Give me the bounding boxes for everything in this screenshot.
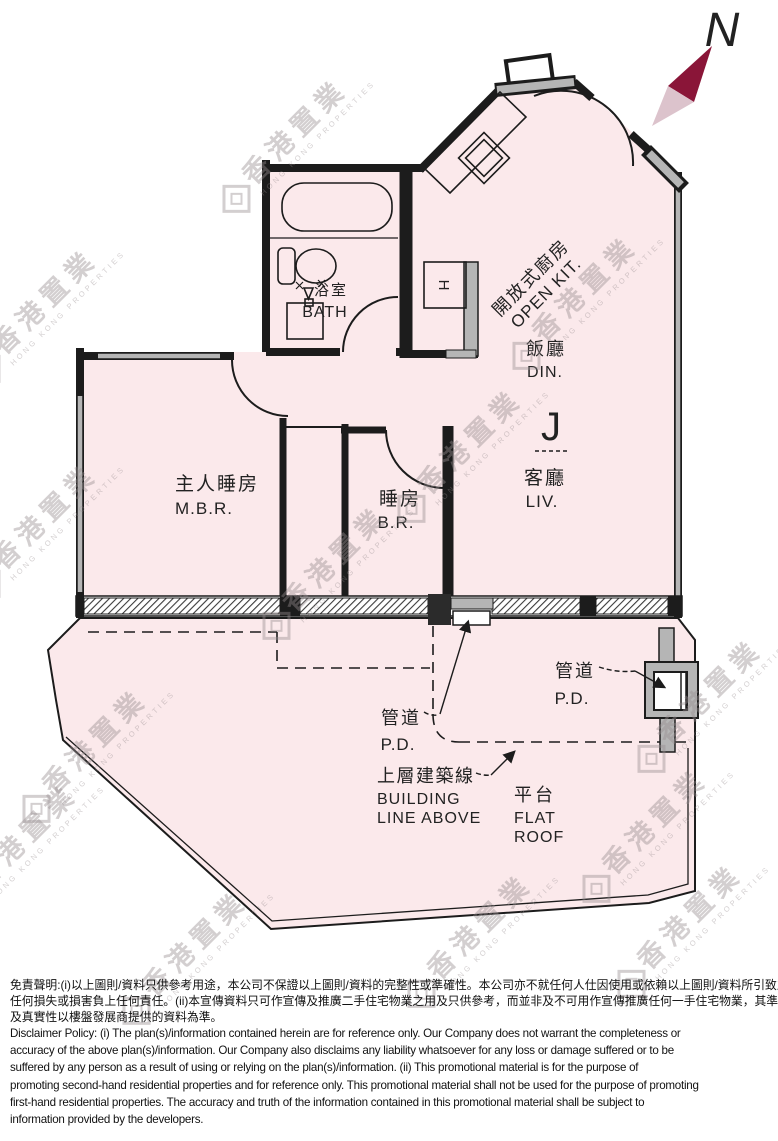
appliance-h-symbol: H	[435, 280, 452, 291]
label-dining-cn: 飯廳	[526, 339, 566, 359]
label-flat-roof-en2: ROOF	[514, 829, 564, 846]
label-living-cn: 客廳	[524, 467, 566, 489]
label-pd-left-cn: 管道	[381, 708, 421, 728]
label-pd-right-cn: 管道	[555, 661, 595, 681]
disclaimer-line-cn: 及真實性以樓盤發展商提供的資料為準。	[10, 1009, 776, 1025]
label-building-line-en2: LINE ABOVE	[377, 810, 481, 827]
label-bath-cn: 浴室	[314, 282, 348, 299]
windows	[76, 596, 682, 616]
label-flat-roof-en1: FLAT	[514, 810, 556, 827]
label-mbr-en: M.B.R.	[175, 499, 233, 518]
disclaimer: 免責聲明:(i)以上圖則/資料只供參考用途，本公司不保證以上圖則/資料的完整性或…	[10, 977, 776, 1128]
floor-plan-page: H 浴室 BATH 開放式廚房 OPEN KIT. 飯廳 DIN. J 客廳 L…	[0, 0, 778, 1141]
disclaimer-line-en: information provided by the developers.	[10, 1111, 776, 1128]
pipe-duct-middle	[428, 594, 493, 625]
label-br-cn: 睡房	[379, 488, 421, 510]
disclaimer-line-en: suffered by any person as a result of us…	[10, 1059, 776, 1076]
label-living-en: LIV.	[526, 492, 559, 511]
disclaimer-line-en: Disclaimer Policy: (i) The plan(s)/infor…	[10, 1025, 776, 1042]
north-arrow-icon: N	[652, 4, 740, 126]
disclaimer-line-en: first-hand residential properties. The a…	[10, 1094, 776, 1111]
flat-interior	[80, 80, 678, 616]
label-br-en: B.R.	[377, 513, 414, 532]
floor-plan: H 浴室 BATH 開放式廚房 OPEN KIT. 飯廳 DIN. J 客廳 L…	[0, 0, 778, 965]
label-flat-roof-cn: 平台	[514, 785, 556, 805]
disclaimer-line-en: accuracy of the above plan(s)/informatio…	[10, 1042, 776, 1059]
flat-roof-area	[48, 618, 695, 929]
label-building-line-en1: BUILDING	[377, 791, 461, 808]
label-pd-left-en: P.D.	[381, 735, 416, 754]
label-bath-en: BATH	[302, 304, 347, 321]
disclaimer-line-en: promoting second-hand residential proper…	[10, 1077, 776, 1094]
disclaimer-line-cn: 任何損失或損害負上任何責任。(ii)本宣傳資料只可作宣傳及推廣二手住宅物業之用及…	[10, 993, 776, 1009]
label-building-line-cn: 上層建築線	[377, 766, 475, 786]
label-pd-right-en: P.D.	[555, 689, 590, 708]
disclaimer-line-cn: 免責聲明:(i)以上圖則/資料只供參考用途，本公司不保證以上圖則/資料的完整性或…	[10, 977, 776, 993]
living-hook-symbol: J	[541, 405, 561, 449]
label-dining-en: DIN.	[527, 364, 563, 381]
label-mbr-cn: 主人睡房	[175, 473, 259, 495]
